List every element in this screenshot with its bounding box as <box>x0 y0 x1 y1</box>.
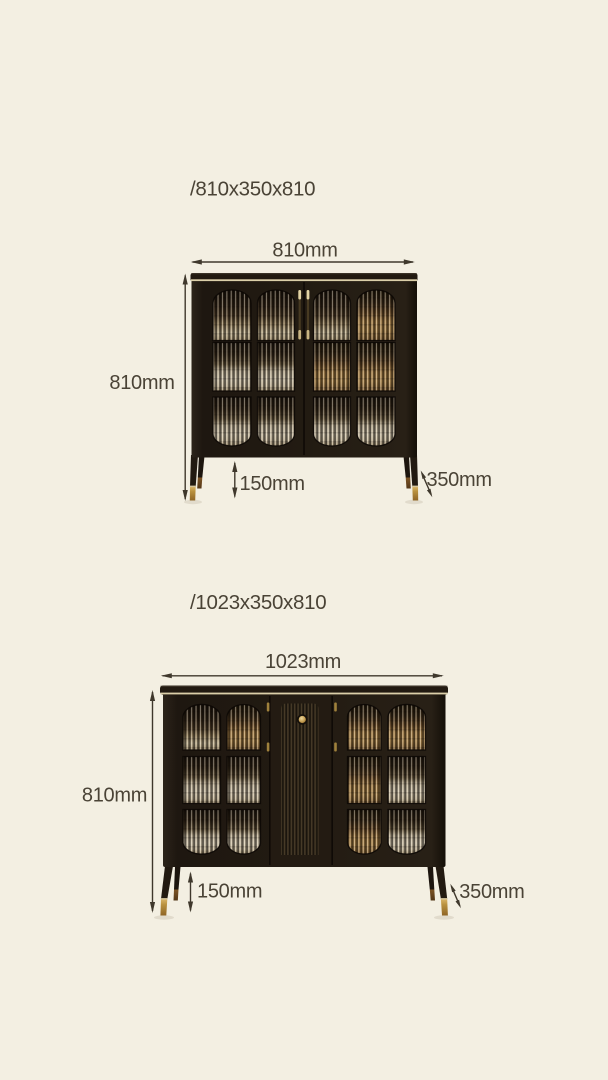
svg-text:/1023x350x810: /1023x350x810 <box>190 591 326 614</box>
svg-text:810mm: 810mm <box>109 372 174 394</box>
svg-text:/810x350x810: /810x350x810 <box>190 178 315 201</box>
svg-text:350mm: 350mm <box>459 881 524 903</box>
svg-text:810mm: 810mm <box>82 785 147 807</box>
svg-text:350mm: 350mm <box>427 469 492 491</box>
svg-text:150mm: 150mm <box>240 473 305 495</box>
svg-text:810mm: 810mm <box>272 240 337 262</box>
svg-text:1023mm: 1023mm <box>265 651 341 673</box>
svg-text:150mm: 150mm <box>197 881 262 903</box>
